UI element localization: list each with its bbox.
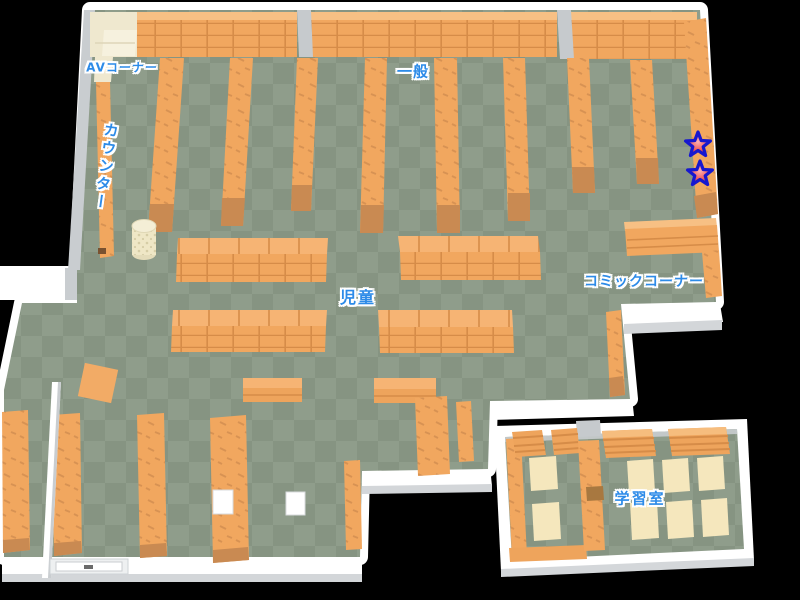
low-shelf <box>171 310 327 352</box>
study-table <box>529 456 558 491</box>
low-shelf <box>378 310 514 353</box>
study-table <box>532 502 561 541</box>
label-study-room: 学習室 <box>614 488 665 509</box>
entrance-door <box>50 559 128 574</box>
wall-bottom-shade <box>2 574 362 582</box>
study-table <box>662 458 690 493</box>
study-shelf <box>551 428 580 455</box>
study-shelf <box>668 427 730 456</box>
label-children: 児童 <box>340 284 376 308</box>
star-marker-icon[interactable] <box>683 157 717 191</box>
study-door-gap <box>576 420 601 437</box>
display-cylinder <box>132 220 156 261</box>
study-shelf <box>512 430 546 457</box>
study-shelf <box>602 429 656 458</box>
study-table <box>697 456 725 491</box>
low-shelf <box>176 238 328 282</box>
white-box <box>286 492 305 515</box>
study-table <box>701 498 729 537</box>
floor-map-graphic <box>0 0 800 600</box>
label-av-corner: AVコーナー <box>86 59 158 76</box>
wall-shelves-top <box>133 10 697 59</box>
study-shelf <box>509 545 587 562</box>
label-general: 一般 <box>397 61 429 82</box>
white-box <box>213 490 233 514</box>
tilted-table <box>78 363 118 403</box>
wall-left-block-face <box>65 268 77 300</box>
shelf-gap <box>297 10 313 57</box>
low-shelf <box>398 236 541 280</box>
bench <box>243 378 302 402</box>
library-floor-map: AVコーナー カウンター 一般 児童 コミックコーナー 学習室 <box>0 0 800 600</box>
bookshelf <box>434 58 460 233</box>
label-comic-corner: コミックコーナー <box>584 271 704 291</box>
study-table <box>666 500 694 539</box>
